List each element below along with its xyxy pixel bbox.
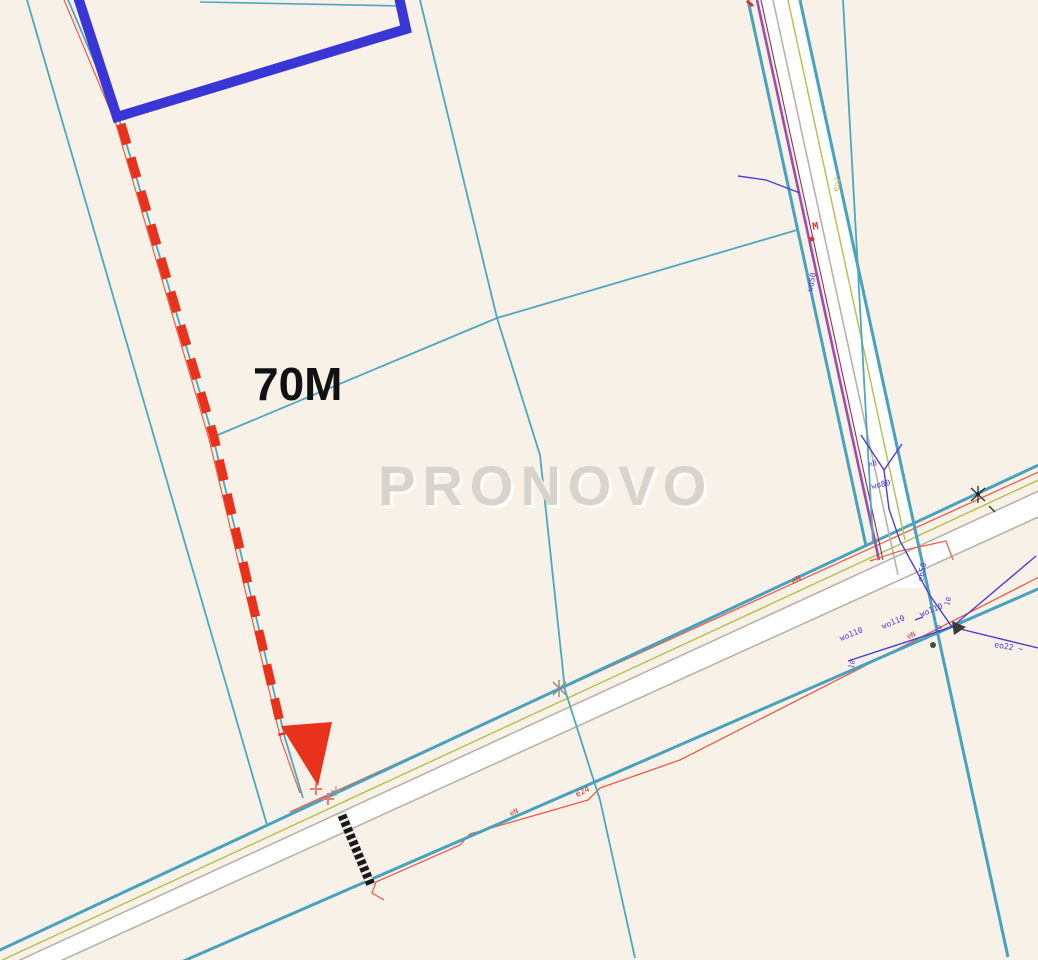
- red-dot-marker: [810, 237, 815, 242]
- watermark-text: PRONOVO: [378, 454, 713, 517]
- distance-label: 70M: [253, 358, 342, 410]
- junction-dot-marker: [930, 642, 936, 648]
- map-drawing: M wd50 eo2 nB wo80 eb50 wo110 10 wo110 w…: [0, 0, 1038, 960]
- map-canvas[interactable]: M wd50 eo2 nB wo80 eb50 wo110 10 wo110 w…: [0, 0, 1038, 960]
